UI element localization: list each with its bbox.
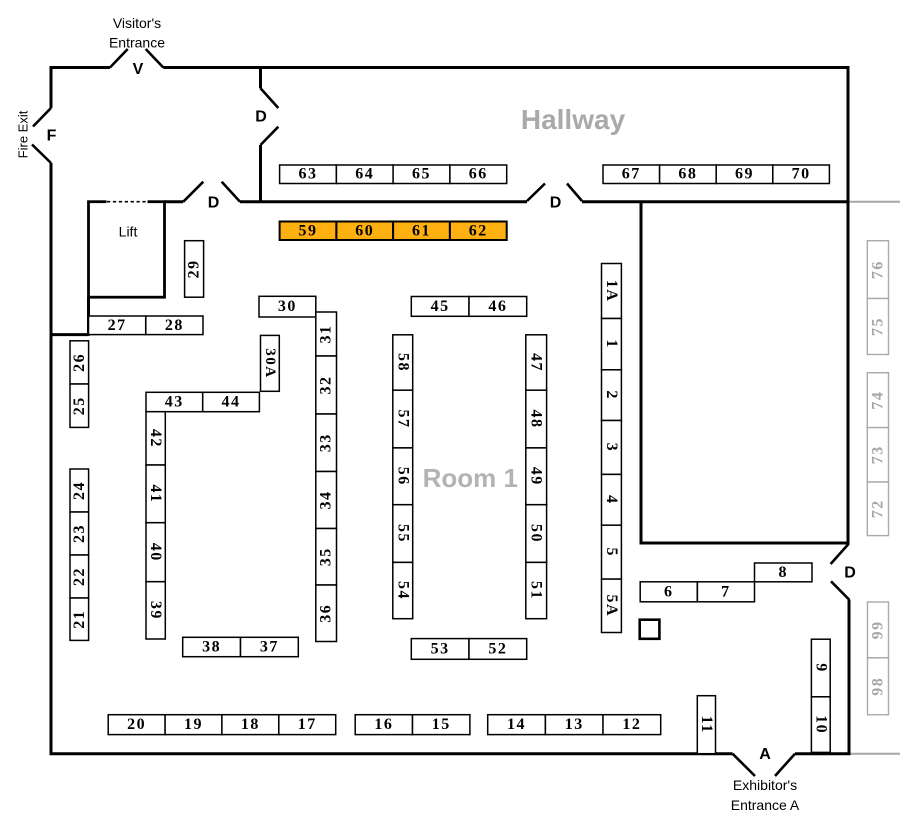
svg-text:3: 3: [603, 443, 620, 453]
svg-text:99: 99: [870, 620, 887, 639]
svg-text:V: V: [133, 61, 144, 78]
svg-text:5A: 5A: [603, 595, 620, 618]
svg-text:15: 15: [432, 716, 451, 733]
svg-text:42: 42: [147, 429, 164, 448]
svg-text:61: 61: [412, 222, 431, 239]
svg-text:38: 38: [202, 639, 221, 656]
svg-text:10: 10: [812, 715, 829, 734]
svg-text:46: 46: [488, 298, 507, 315]
svg-text:51: 51: [528, 581, 545, 600]
svg-text:27: 27: [108, 317, 127, 334]
svg-text:8: 8: [778, 564, 788, 581]
svg-text:1A: 1A: [603, 280, 620, 303]
svg-text:4: 4: [603, 495, 620, 505]
svg-text:Exhibitor's: Exhibitor's: [733, 777, 797, 793]
svg-text:24: 24: [71, 481, 88, 500]
svg-text:6: 6: [664, 583, 674, 600]
svg-text:45: 45: [431, 298, 450, 315]
svg-text:54: 54: [394, 581, 411, 600]
svg-text:11: 11: [698, 716, 715, 734]
svg-text:Entrance A: Entrance A: [731, 797, 800, 813]
svg-text:74: 74: [869, 391, 886, 410]
svg-text:26: 26: [71, 353, 88, 372]
svg-text:28: 28: [165, 317, 184, 334]
svg-text:58: 58: [394, 353, 411, 372]
svg-text:7: 7: [721, 583, 731, 600]
svg-text:9: 9: [812, 663, 829, 673]
svg-text:Hallway: Hallway: [521, 104, 626, 135]
svg-text:72: 72: [869, 499, 886, 518]
svg-text:65: 65: [412, 166, 431, 183]
svg-text:75: 75: [869, 317, 886, 336]
svg-text:52: 52: [488, 641, 507, 658]
svg-text:14: 14: [507, 716, 526, 733]
svg-text:69: 69: [735, 166, 754, 183]
svg-text:62: 62: [469, 222, 488, 239]
svg-text:21: 21: [71, 610, 88, 629]
svg-text:70: 70: [792, 166, 811, 183]
svg-text:31: 31: [318, 325, 335, 344]
svg-text:Entrance: Entrance: [109, 35, 165, 51]
svg-text:20: 20: [127, 716, 146, 733]
svg-text:67: 67: [622, 166, 641, 183]
svg-text:13: 13: [565, 716, 584, 733]
svg-text:30A: 30A: [262, 348, 278, 378]
svg-text:68: 68: [678, 166, 697, 183]
svg-text:33: 33: [318, 433, 335, 452]
svg-text:Visitor's: Visitor's: [113, 15, 161, 31]
svg-text:49: 49: [528, 467, 545, 486]
svg-text:23: 23: [71, 524, 88, 543]
svg-text:57: 57: [394, 410, 411, 429]
svg-text:56: 56: [394, 467, 411, 486]
svg-text:12: 12: [622, 716, 641, 733]
svg-text:35: 35: [318, 547, 335, 566]
svg-text:32: 32: [318, 376, 335, 395]
svg-text:41: 41: [147, 484, 164, 503]
svg-text:Fire Exit: Fire Exit: [16, 110, 31, 158]
svg-text:59: 59: [299, 222, 318, 239]
svg-text:48: 48: [528, 410, 545, 429]
svg-text:73: 73: [869, 445, 886, 464]
svg-text:34: 34: [318, 491, 335, 510]
svg-text:D: D: [550, 195, 562, 212]
svg-text:50: 50: [528, 524, 545, 543]
svg-text:66: 66: [469, 166, 488, 183]
svg-text:1: 1: [603, 339, 620, 349]
svg-text:A: A: [759, 746, 771, 763]
svg-text:17: 17: [298, 716, 317, 733]
svg-text:76: 76: [869, 260, 886, 279]
svg-text:30: 30: [278, 298, 297, 315]
svg-text:D: D: [208, 195, 220, 212]
svg-text:5: 5: [603, 547, 620, 557]
svg-text:Lift: Lift: [119, 224, 138, 240]
svg-text:D: D: [844, 565, 856, 582]
svg-text:40: 40: [147, 543, 164, 562]
svg-text:25: 25: [71, 396, 88, 415]
svg-text:39: 39: [147, 601, 164, 620]
svg-text:D: D: [255, 109, 267, 126]
svg-text:63: 63: [299, 166, 318, 183]
svg-text:47: 47: [528, 353, 545, 372]
svg-text:53: 53: [431, 641, 450, 658]
svg-text:Room 1: Room 1: [423, 463, 518, 493]
svg-text:22: 22: [71, 567, 88, 586]
svg-text:18: 18: [241, 716, 260, 733]
svg-text:43: 43: [165, 394, 184, 411]
svg-text:37: 37: [260, 639, 279, 656]
svg-text:55: 55: [394, 524, 411, 543]
svg-text:36: 36: [318, 604, 335, 623]
svg-text:29: 29: [186, 259, 203, 278]
svg-text:64: 64: [355, 166, 374, 183]
svg-text:44: 44: [222, 394, 241, 411]
svg-text:60: 60: [355, 222, 374, 239]
svg-text:F: F: [47, 128, 57, 145]
svg-text:19: 19: [184, 716, 203, 733]
svg-text:2: 2: [603, 390, 620, 400]
svg-text:16: 16: [374, 716, 393, 733]
svg-text:98: 98: [870, 677, 887, 696]
